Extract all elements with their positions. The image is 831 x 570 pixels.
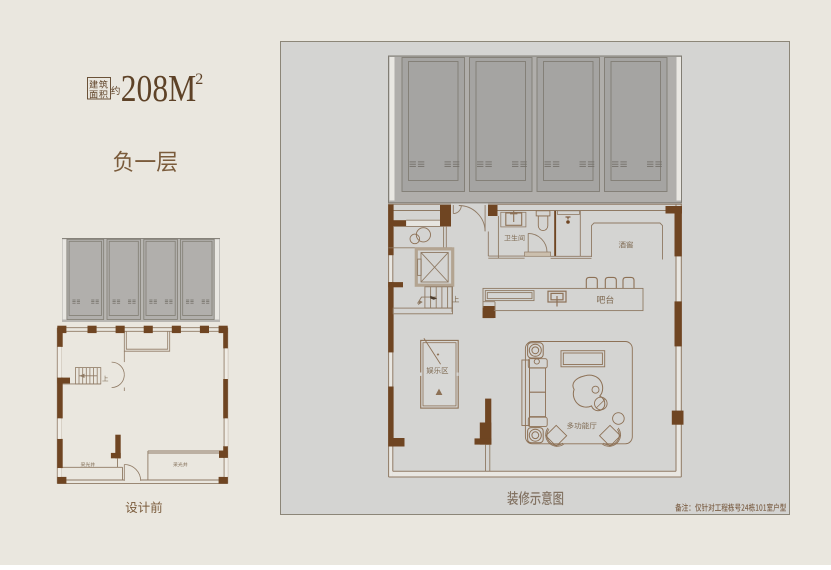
- svg-text:2: 2: [195, 71, 203, 88]
- svg-text:208M: 208M: [121, 67, 196, 109]
